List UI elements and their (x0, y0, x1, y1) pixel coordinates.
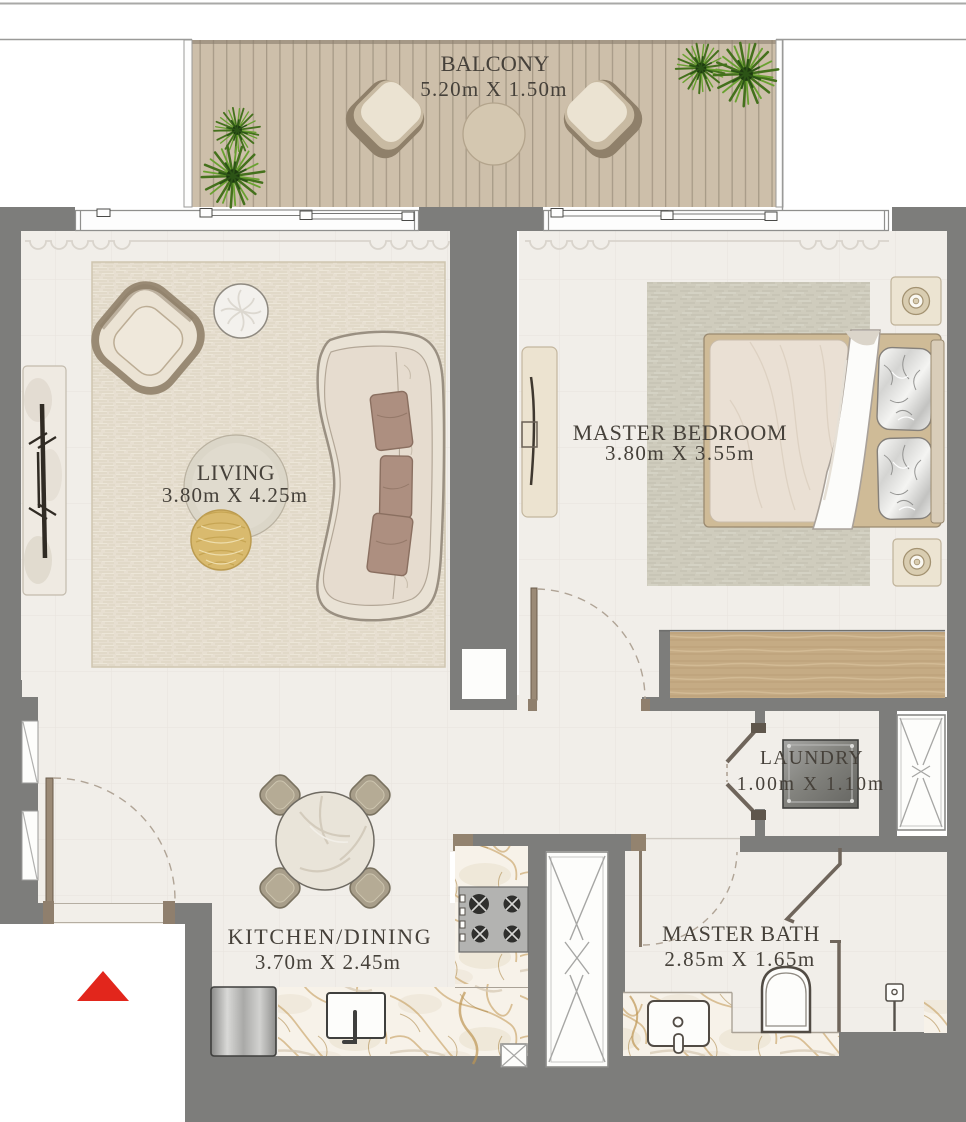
svg-text:MASTER BATH: MASTER BATH (662, 921, 820, 946)
svg-text:5.20m X 1.50m: 5.20m X 1.50m (420, 77, 567, 101)
svg-text:3.80m X 4.25m: 3.80m X 4.25m (162, 483, 308, 507)
svg-text:2.85m X 1.65m: 2.85m X 1.65m (664, 947, 815, 971)
svg-text:3.70m X 2.45m: 3.70m X 2.45m (255, 950, 401, 974)
svg-text:LIVING: LIVING (197, 460, 275, 485)
svg-text:LAUNDRY: LAUNDRY (760, 748, 864, 769)
svg-text:1.00m X 1.10m: 1.00m X 1.10m (737, 774, 885, 795)
svg-text:KITCHEN/DINING: KITCHEN/DINING (228, 924, 433, 949)
svg-text:3.80m X 3.55m: 3.80m X 3.55m (605, 441, 755, 465)
svg-text:BALCONY: BALCONY (441, 51, 550, 76)
